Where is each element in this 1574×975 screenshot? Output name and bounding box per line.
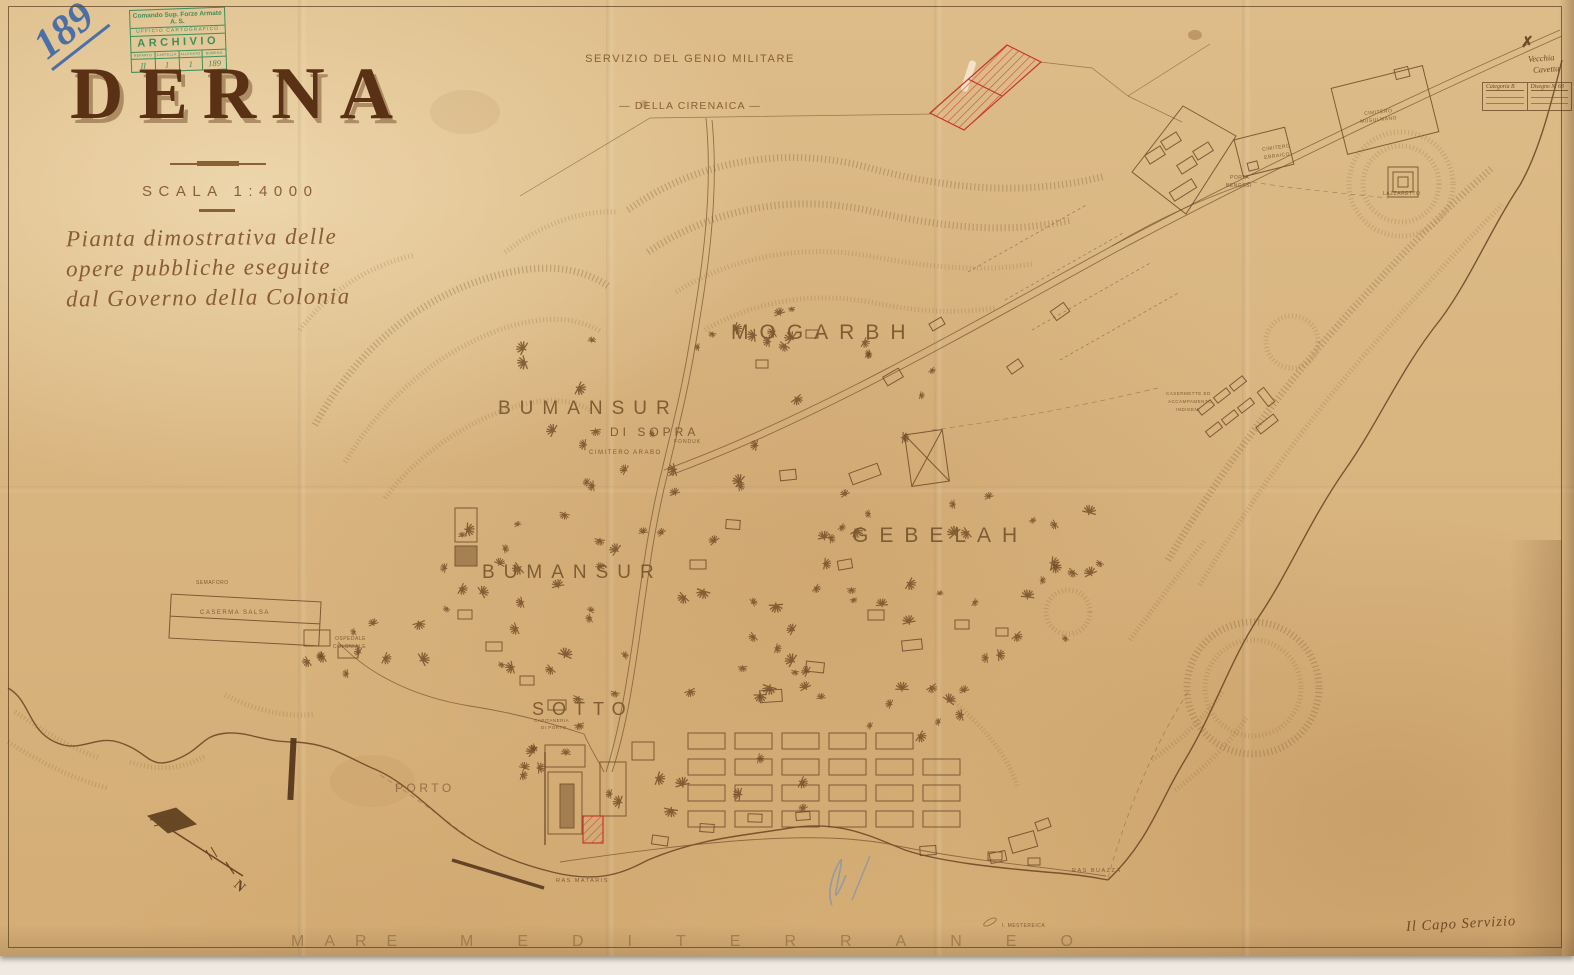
map-label-capitaneria-106: CAPITANERIA xyxy=(534,719,569,724)
map-label-ras-mataris-118: RAS MATARIS xyxy=(556,879,609,885)
map-label-indigeni-117: INDIGENI xyxy=(1176,408,1200,413)
scale-rule xyxy=(199,209,235,212)
agency-line1: SERVIZIO DEL GENIO MILITARE xyxy=(560,54,820,66)
map-label-lazzaretto-114: LAZZARETTO xyxy=(1383,192,1420,197)
subtitle-line-3: dal Governo della Colonia xyxy=(66,285,351,312)
map-label-casermette-ed-115: CASERMETTE ED xyxy=(1166,392,1211,397)
map-title: DERNA xyxy=(70,56,408,134)
subtitle-line-2: opere pubbliche eseguite xyxy=(66,255,331,282)
map-label-semaforo-102: SEMAFORO xyxy=(196,581,229,586)
map-label-accampamento-116: ACCAMPAMENTO xyxy=(1168,400,1212,405)
agency-header: SERVIZIO DEL GENIO MILITARE — DELLA CIRE… xyxy=(560,20,820,145)
x-mark: ✗ xyxy=(1521,35,1534,51)
map-label-porta-112: PORTA xyxy=(1230,176,1249,181)
title-rule xyxy=(170,163,266,165)
map-label-fonduk-101: FONDUK xyxy=(674,440,701,445)
map-label-mogarbh-0: MOGARBH xyxy=(731,322,917,343)
agency-line2: — DELLA CIRENAICA — xyxy=(560,101,820,112)
map-label-bumansur-1: BUMANSUR xyxy=(498,399,679,418)
map-label-sotto-4: SOTTO xyxy=(532,700,634,718)
map-label-cimitero-arabo-100: CIMITERO ARABO xyxy=(589,450,662,456)
map-label-coloniale-105: COLONIALE xyxy=(333,645,366,650)
map-label-bumansur-3: BUMANSUR xyxy=(482,563,663,582)
map-label-bengasi-113: BENGASI xyxy=(1226,184,1252,189)
map-label-di-sopra-2: DI SOPRA xyxy=(610,426,699,438)
corner-table-left-cell: Categoria B xyxy=(1483,83,1528,110)
map-label-ebraico-109: EBRAICO xyxy=(1264,152,1290,161)
sheet-edge-shadow-bottom xyxy=(0,926,1574,956)
map-label-ras-buazza-119: RAS BUAZZA xyxy=(1072,869,1122,875)
subtitle-line-1: Pianta dimostrativa delle xyxy=(66,225,338,252)
corner-table-left-header: Categoria B xyxy=(1486,84,1524,91)
map-label-ospedale-104: OSPEDALE xyxy=(335,637,366,642)
scale-text: SCALA 1:4000 xyxy=(142,184,318,200)
map-label-gebelah-5: GEBELAH xyxy=(852,525,1028,546)
sheet-edge-shadow-bottom-right xyxy=(1510,540,1562,956)
map-label-porto-6: PORTO xyxy=(395,782,455,794)
map-label-caserma-salsa-103: CASERMA SALSA xyxy=(200,610,270,616)
map-label-di-porto-107: DI PORTO xyxy=(541,726,567,731)
map-label-musulmano-111: MUSULMANO xyxy=(1360,116,1397,125)
corner-note-line2: Cavetta xyxy=(1533,64,1560,75)
corner-note-line1: Vecchia xyxy=(1528,53,1555,64)
scanned-map-page: N MOGARBHBUMANSURDI SOPRABUMANSURSOTTOGE… xyxy=(0,0,1574,975)
